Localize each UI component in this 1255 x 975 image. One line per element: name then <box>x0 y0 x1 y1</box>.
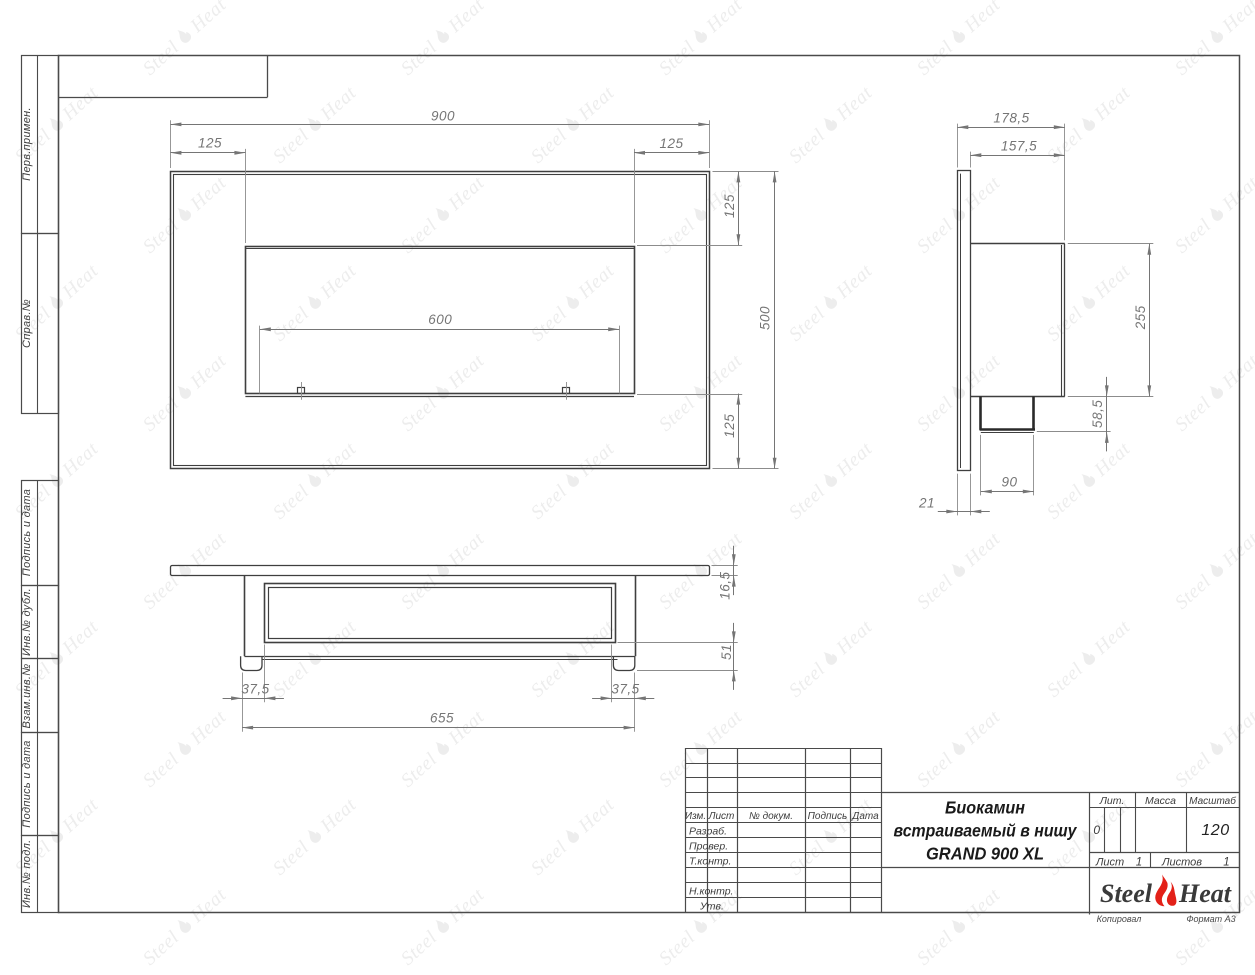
svg-text:Подпись: Подпись <box>808 811 848 822</box>
svg-text:Формат А3: Формат А3 <box>1186 914 1235 924</box>
svg-text:16,5: 16,5 <box>717 571 732 599</box>
svg-text:125: 125 <box>722 414 737 438</box>
svg-text:655: 655 <box>430 710 454 725</box>
svg-text:90: 90 <box>1001 475 1017 490</box>
svg-text:500: 500 <box>758 306 773 330</box>
svg-text:Дата: Дата <box>851 811 879 822</box>
svg-text:21: 21 <box>918 496 935 511</box>
svg-text:№ докум.: № докум. <box>749 811 793 822</box>
svg-text:Утв.: Утв. <box>699 901 724 913</box>
svg-text:Взам.инв.№: Взам.инв.№ <box>21 664 33 729</box>
svg-text:Биокамин: Биокамин <box>945 798 1025 818</box>
svg-text:Т.контр.: Т.контр. <box>689 856 731 868</box>
svg-text:Копировал: Копировал <box>1097 914 1142 924</box>
svg-text:1: 1 <box>1136 857 1142 869</box>
svg-text:178,5: 178,5 <box>993 110 1029 125</box>
svg-text:900: 900 <box>431 109 455 124</box>
svg-text:Steel: Steel <box>1100 879 1153 908</box>
svg-text:51: 51 <box>719 644 734 660</box>
svg-text:Масса: Масса <box>1145 795 1176 807</box>
svg-text:37,5: 37,5 <box>241 682 269 697</box>
svg-text:Подпись и дата: Подпись и дата <box>21 740 33 827</box>
svg-text:Подпись и дата: Подпись и дата <box>21 489 33 576</box>
svg-text:Листов: Листов <box>1161 857 1202 869</box>
svg-text:встраиваемый в нишу: встраиваемый в нишу <box>894 821 1078 841</box>
svg-text:Лит.: Лит. <box>1099 795 1125 807</box>
svg-text:Разраб.: Разраб. <box>689 826 727 838</box>
svg-text:Провер.: Провер. <box>689 841 728 853</box>
svg-text:157,5: 157,5 <box>1001 138 1037 153</box>
svg-text:125: 125 <box>198 135 222 150</box>
svg-text:Н.контр.: Н.контр. <box>689 886 733 898</box>
svg-text:Лист: Лист <box>708 811 735 822</box>
svg-text:125: 125 <box>659 136 683 151</box>
svg-text:Инв.№ подл.: Инв.№ подл. <box>21 840 33 909</box>
svg-text:125: 125 <box>722 194 737 218</box>
svg-text:Масштаб: Масштаб <box>1189 795 1236 807</box>
svg-text:120: 120 <box>1201 822 1229 839</box>
svg-text:Справ.№: Справ.№ <box>21 299 33 348</box>
svg-text:1: 1 <box>1223 857 1229 869</box>
svg-text:0: 0 <box>1093 823 1100 837</box>
svg-text:Лист: Лист <box>1095 857 1124 869</box>
svg-text:Изм.: Изм. <box>685 811 706 822</box>
svg-text:GRAND 900 XL: GRAND 900 XL <box>926 844 1044 864</box>
svg-text:58,5: 58,5 <box>1090 400 1105 428</box>
svg-text:Инв.№ дубл.: Инв.№ дубл. <box>21 588 33 656</box>
svg-text:600: 600 <box>428 312 452 327</box>
svg-text:37,5: 37,5 <box>611 682 639 697</box>
svg-text:Heat: Heat <box>1178 879 1232 908</box>
svg-text:255: 255 <box>1133 305 1148 330</box>
svg-text:Перв.примен.: Перв.примен. <box>21 107 33 181</box>
